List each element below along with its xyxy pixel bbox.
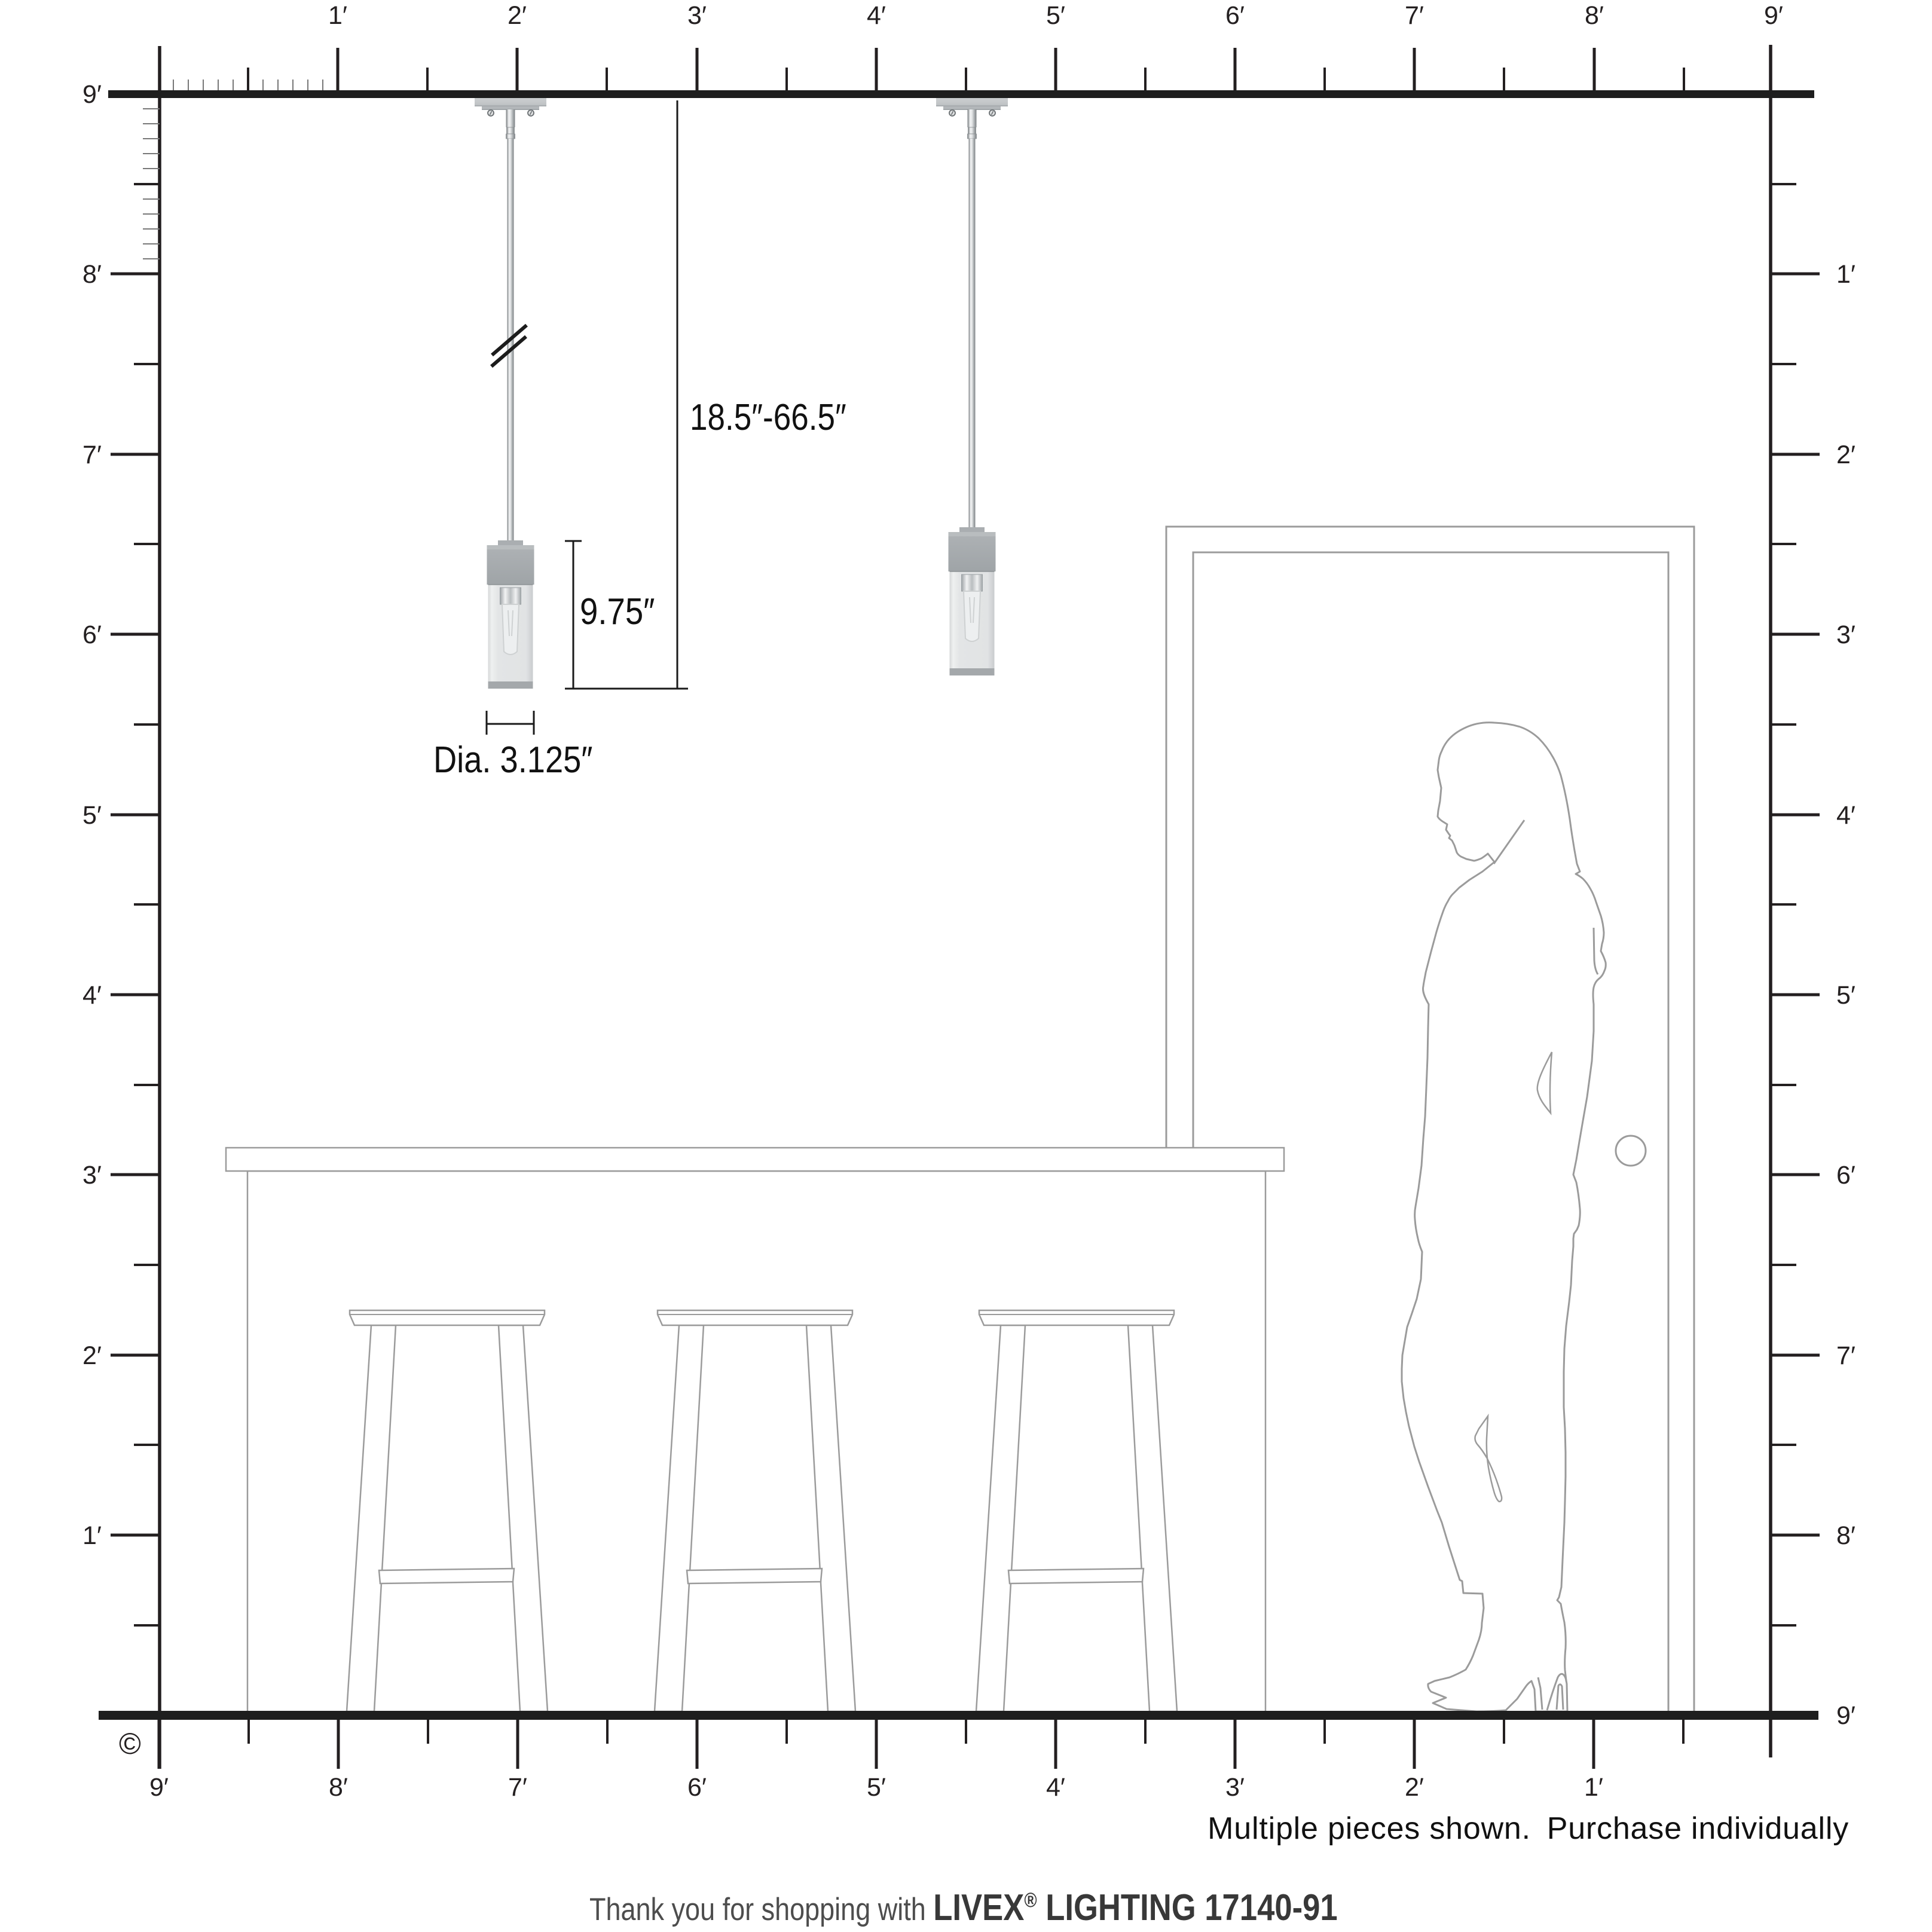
svg-text:8′: 8′	[329, 1773, 348, 1802]
svg-text:2′: 2′	[1405, 1773, 1424, 1802]
svg-text:1′: 1′	[82, 1521, 102, 1550]
svg-text:9′: 9′	[149, 1773, 169, 1802]
svg-text:8′: 8′	[82, 260, 102, 289]
svg-text:Thank you for shopping with LI: Thank you for shopping with LIVEX® LIGHT…	[589, 1887, 1338, 1928]
svg-text:3′: 3′	[687, 1, 707, 30]
svg-text:8′: 8′	[1836, 1521, 1855, 1550]
svg-text:7′: 7′	[1836, 1341, 1855, 1370]
svg-text:3′: 3′	[1836, 620, 1855, 649]
svg-text:6′: 6′	[1225, 1, 1245, 30]
svg-text:3′: 3′	[82, 1161, 102, 1190]
svg-text:9′: 9′	[1836, 1701, 1855, 1730]
svg-text:4′: 4′	[867, 1, 886, 30]
svg-text:©: ©	[119, 1727, 141, 1760]
svg-text:6′: 6′	[687, 1773, 707, 1802]
svg-text:Dia. 3.125″: Dia. 3.125″	[433, 739, 593, 781]
svg-text:7′: 7′	[82, 441, 102, 469]
svg-text:9.75″: 9.75″	[580, 591, 655, 632]
svg-text:4′: 4′	[82, 981, 102, 1010]
svg-text:5′: 5′	[867, 1773, 886, 1802]
svg-text:4′: 4′	[1046, 1773, 1065, 1802]
svg-text:5′: 5′	[1046, 1, 1065, 30]
svg-text:3′: 3′	[1225, 1773, 1245, 1802]
svg-text:Multiple pieces shown. Purchas: Multiple pieces shown. Purchase individu…	[1207, 1811, 1849, 1846]
svg-text:6′: 6′	[82, 620, 102, 649]
svg-text:7′: 7′	[1405, 1, 1424, 30]
svg-text:4′: 4′	[1836, 801, 1855, 830]
svg-text:5′: 5′	[1836, 981, 1855, 1010]
svg-text:9′: 9′	[1764, 1, 1783, 30]
svg-text:18.5″-66.5″: 18.5″-66.5″	[690, 397, 846, 438]
svg-text:1′: 1′	[328, 1, 347, 30]
svg-text:1′: 1′	[1584, 1773, 1603, 1802]
svg-text:8′: 8′	[1585, 1, 1604, 30]
svg-text:2′: 2′	[82, 1341, 102, 1370]
svg-text:5′: 5′	[82, 801, 102, 830]
svg-text:1′: 1′	[1836, 260, 1855, 289]
svg-text:7′: 7′	[508, 1773, 527, 1802]
svg-text:2′: 2′	[508, 1, 527, 30]
svg-text:6′: 6′	[1836, 1161, 1855, 1190]
svg-text:9′: 9′	[82, 80, 102, 109]
svg-text:2′: 2′	[1836, 441, 1855, 469]
